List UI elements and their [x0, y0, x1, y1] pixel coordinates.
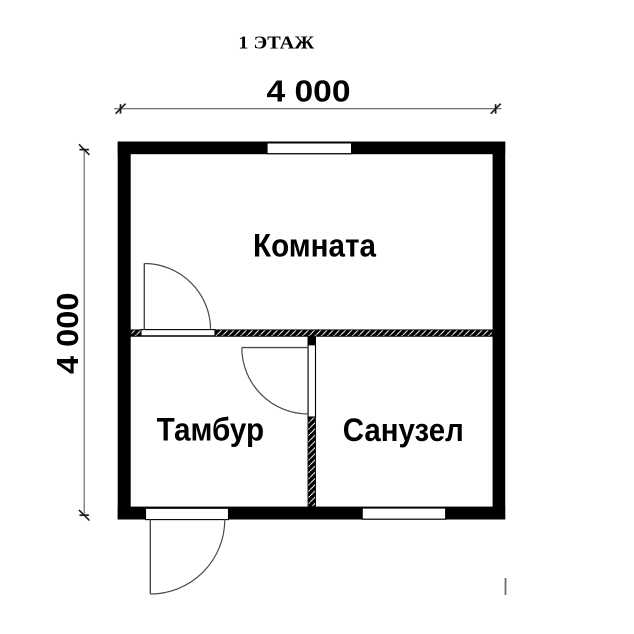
svg-text:Санузел: Санузел	[343, 412, 464, 448]
svg-text:Комната: Комната	[253, 228, 377, 264]
svg-text:4 000: 4 000	[267, 75, 351, 109]
svg-text:1 ЭТАЖ: 1 ЭТАЖ	[238, 33, 314, 53]
svg-text:4 000: 4 000	[51, 293, 85, 375]
svg-text:Тамбур: Тамбур	[157, 412, 265, 448]
